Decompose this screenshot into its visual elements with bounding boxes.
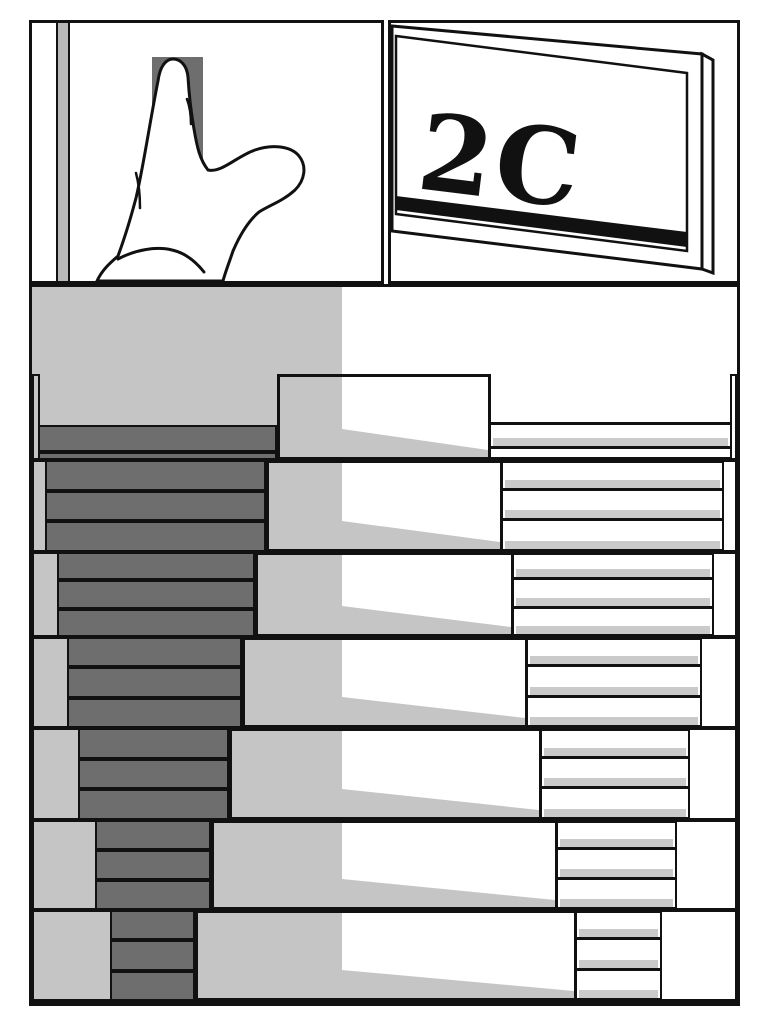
stair-tread-shadow	[579, 929, 658, 937]
stair-landing-shade	[269, 463, 342, 549]
stair-landing-shade	[198, 913, 342, 998]
stair-left-wall	[32, 910, 112, 1001]
stair-tread-shadow	[530, 717, 698, 725]
stair-landing-shadow-wedge	[342, 555, 511, 634]
stair-dark-tread	[78, 728, 229, 759]
stair-landing-shadow-wedge	[342, 823, 555, 907]
stair-left-wall	[32, 728, 80, 820]
stair-tread-shadow	[505, 480, 720, 488]
stair-tread-shadow	[493, 438, 728, 446]
pointing-hand-icon	[32, 23, 381, 281]
stair-tread-shadow	[579, 960, 658, 968]
stair-landing	[229, 728, 542, 820]
stair-right-wall	[700, 637, 737, 728]
stairwell-drawing	[32, 287, 737, 1001]
stair-dark-tread	[110, 971, 195, 1001]
stair-tread-shadow	[505, 510, 720, 518]
stair-landing-shadow-wedge	[342, 463, 500, 549]
stair-tread-shadow	[516, 569, 710, 577]
stair-dark-tread	[67, 637, 242, 667]
hand-outline	[97, 59, 304, 281]
stair-right-wall	[722, 460, 737, 552]
stair-landing-shade	[214, 823, 342, 907]
stair-left-wall	[32, 637, 69, 728]
stair-tread-shadow	[560, 899, 673, 907]
stair-dark-tread	[95, 820, 211, 850]
stair-dark-tread	[57, 580, 255, 608]
stair-landing-shadow-wedge	[342, 377, 488, 457]
stair-dark-tread	[95, 880, 211, 910]
stair-left-wall	[32, 820, 97, 910]
sign-label: 2C	[412, 89, 590, 233]
stair-dark-tread	[78, 789, 229, 820]
stair-landing	[277, 374, 491, 460]
stair-dark-tread	[57, 609, 255, 637]
stair-tread-shadow	[544, 809, 686, 817]
stair-right-wall	[730, 374, 737, 460]
stair-right-wall	[712, 552, 737, 637]
stair-landing	[195, 910, 577, 1001]
stair-landing-shade	[280, 377, 342, 457]
stair-right-wall	[688, 728, 737, 820]
panel-stairwell	[29, 284, 740, 1006]
stair-right-wall	[675, 820, 737, 910]
stair-tread-shadow	[505, 541, 720, 549]
stair-landing	[266, 460, 503, 552]
stair-dark-tread	[110, 940, 195, 970]
comic-page: 2C	[0, 0, 768, 1024]
stair-light-tread	[491, 449, 730, 460]
stair-dark-tread	[38, 452, 277, 460]
stair-landing	[255, 552, 514, 637]
apartment-sign-icon: 2C	[391, 23, 737, 281]
stair-tread-shadow	[560, 839, 673, 847]
stair-dark-tread	[45, 521, 266, 552]
stair-dark-tread	[95, 850, 211, 880]
stair-landing-shadow-wedge	[342, 731, 539, 817]
stair-landing-shadow-wedge	[342, 913, 574, 998]
stair-dark-tread	[57, 552, 255, 580]
stair-dark-tread	[67, 667, 242, 697]
stair-dark-tread	[45, 491, 266, 522]
stair-landing	[242, 637, 528, 728]
stair-dark-tread	[78, 759, 229, 790]
stair-tread-shadow	[516, 626, 710, 634]
stair-left-wall	[32, 552, 59, 637]
stair-tread-shadow	[530, 656, 698, 664]
stair-tread-shadow	[544, 778, 686, 786]
stair-right-wall	[660, 910, 737, 1001]
panel-apartment-sign: 2C	[388, 20, 740, 284]
stair-landing-shade	[232, 731, 342, 817]
panel-hand-doorbell	[29, 20, 384, 284]
stair-tread-shadow	[530, 687, 698, 695]
stair-landing-shade	[258, 555, 342, 634]
stair-landing-shade	[245, 640, 342, 725]
stair-tread-shadow	[579, 990, 658, 998]
stair-dark-tread	[38, 425, 277, 452]
stair-tread-shadow	[544, 748, 686, 756]
stair-landing	[211, 820, 558, 910]
sign-side-face	[702, 54, 713, 273]
stair-tread-shadow	[516, 598, 710, 606]
stair-dark-tread	[110, 910, 195, 940]
stair-dark-tread	[45, 460, 266, 491]
stair-tread-shadow	[560, 869, 673, 877]
stair-landing-shadow-wedge	[342, 640, 525, 725]
stair-dark-tread	[67, 698, 242, 728]
